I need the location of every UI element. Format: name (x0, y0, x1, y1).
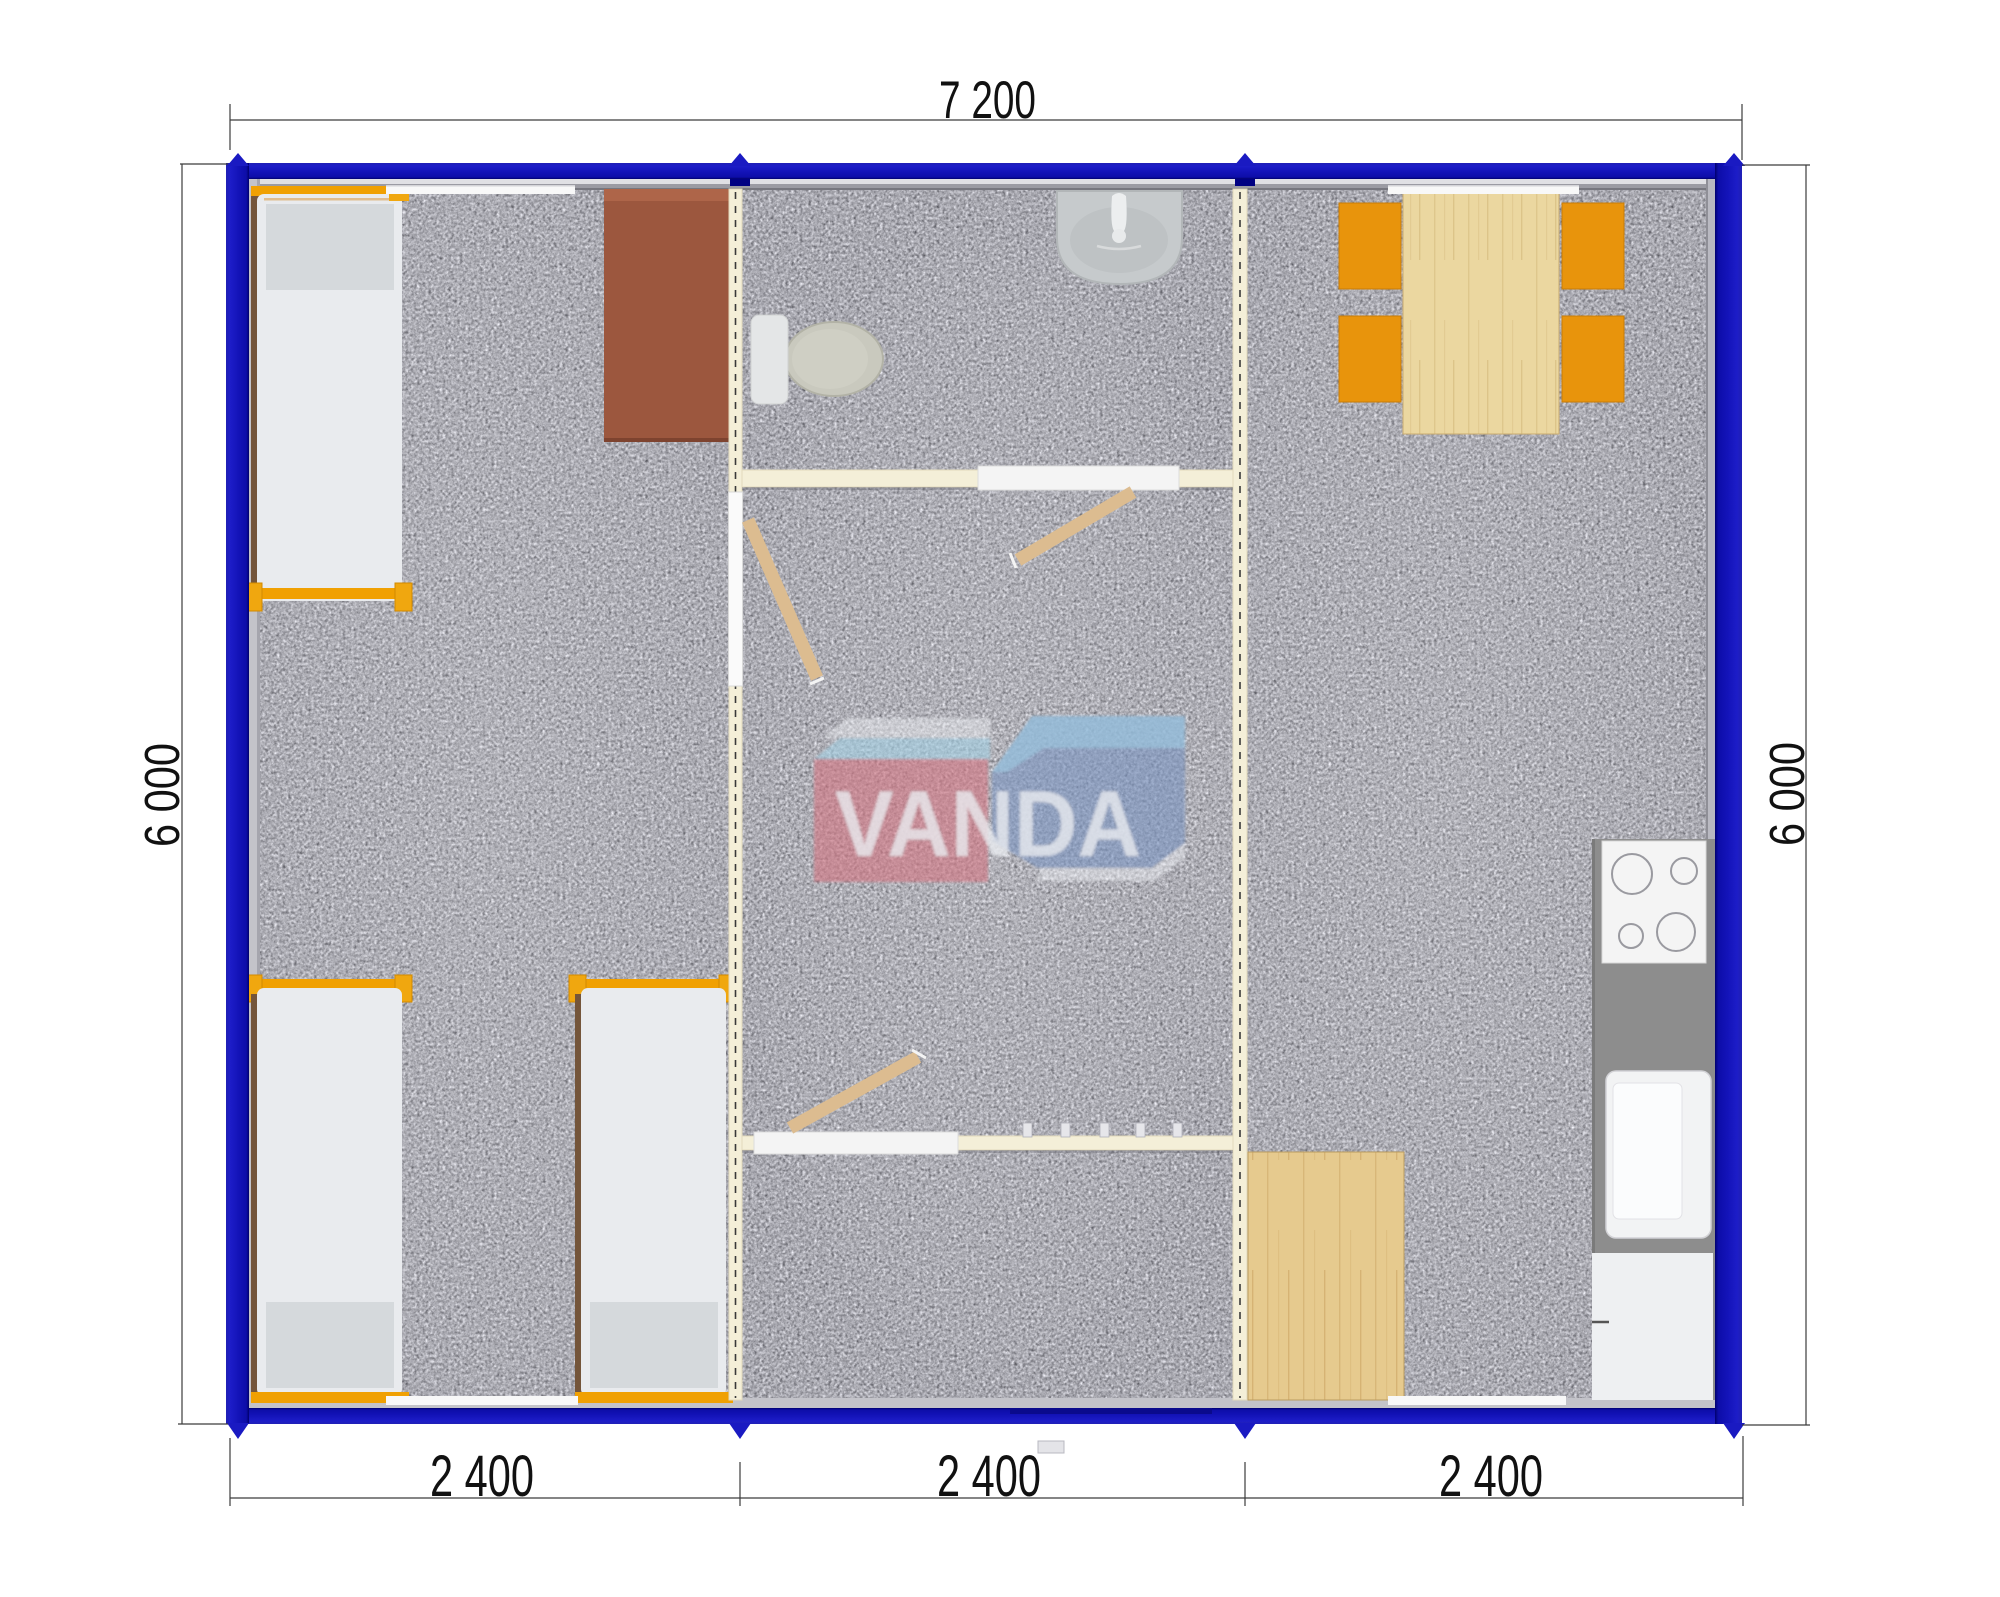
svg-text:7 200: 7 200 (939, 71, 1036, 130)
svg-text:2 400: 2 400 (430, 1444, 534, 1509)
svg-text:VANDA: VANDA (835, 771, 1141, 876)
svg-text:6 000: 6 000 (1761, 742, 1815, 846)
svg-text:2 400: 2 400 (937, 1444, 1041, 1509)
svg-text:6 000: 6 000 (136, 743, 190, 847)
svg-text:2 400: 2 400 (1439, 1444, 1543, 1509)
